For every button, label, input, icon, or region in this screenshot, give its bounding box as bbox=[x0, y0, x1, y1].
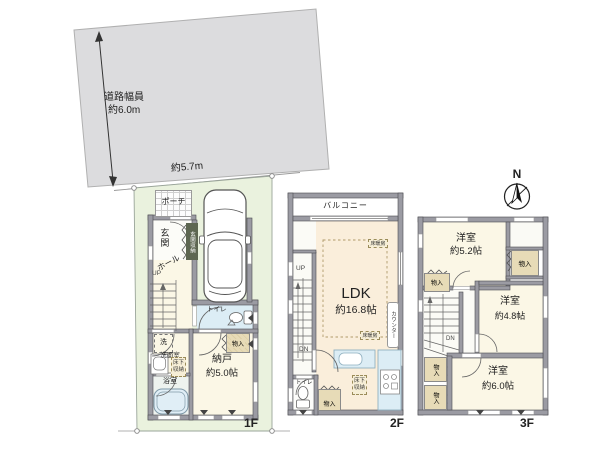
up-label-1f: UP bbox=[152, 270, 161, 277]
window-marker-icon bbox=[248, 314, 253, 322]
closet-3f-bottom1-label: 物入 bbox=[431, 364, 440, 376]
underfloor-storage-2f-label: 床下収納 bbox=[354, 378, 365, 391]
room-label-bathroom: 浴室 bbox=[152, 378, 188, 386]
closet-2f-label: 物入 bbox=[323, 399, 335, 408]
closet-3f-right-label: 物入 bbox=[519, 258, 532, 268]
road-width-value: 約6.0m bbox=[108, 105, 140, 117]
car-illustration bbox=[200, 190, 251, 302]
counter-label: カウンター bbox=[389, 311, 397, 339]
room-size-3f-room3: 約6.0帖 bbox=[455, 382, 541, 393]
underfloor-storage-2f: 床下収納 bbox=[352, 375, 367, 395]
room-label-entrance-storage: 玄関収納 bbox=[188, 231, 196, 253]
closet-1f: 物入 bbox=[226, 333, 250, 353]
room-label-toilet-2f: トイレ bbox=[292, 380, 316, 386]
counter-box: カウンター bbox=[387, 302, 399, 348]
room-label-entrance: 玄関 bbox=[159, 228, 169, 254]
closet-3f-right: 物入 bbox=[511, 250, 539, 276]
stove-icon bbox=[381, 370, 400, 394]
floor-label-1f: 1F bbox=[230, 417, 258, 431]
room-label-3f-room1: 洋室 bbox=[424, 233, 508, 245]
closet-1f-label: 物入 bbox=[231, 339, 245, 348]
floor-label-2f: 2F bbox=[376, 417, 404, 431]
window-marker-icon bbox=[228, 410, 236, 415]
window-marker-icon bbox=[299, 410, 307, 415]
closet-3f-bottom2-label: 物入 bbox=[431, 392, 440, 404]
room-label-storeroom: 納戸 bbox=[193, 354, 251, 366]
window-marker-icon bbox=[164, 410, 172, 415]
up-label-2f: UP bbox=[296, 265, 305, 272]
floor-heating-text-1: 床暖房 bbox=[370, 241, 385, 247]
compass-north-label: N bbox=[505, 168, 529, 182]
room-label-3f-room3: 洋室 bbox=[455, 366, 541, 378]
room-size-3f-room1: 約5.2帖 bbox=[424, 247, 508, 258]
floor-heating-label-top: 床暖房 bbox=[368, 239, 388, 248]
window-marker-icon bbox=[517, 410, 525, 415]
laundry-label: 洗 bbox=[160, 339, 167, 346]
room-label-porch: ポーチ bbox=[155, 197, 192, 206]
room-label-toilet-1f: トイレ bbox=[207, 306, 227, 313]
floorplan-page: 道路幅員 約6.0m 約5.7m N ポーチ 玄関 玄関収納 ホール UP トイ… bbox=[0, 0, 600, 450]
floor-heating-text-2: 床暖房 bbox=[362, 333, 377, 339]
closet-3f-bottom1: 物入 bbox=[424, 357, 447, 382]
dn-label-2f: DN bbox=[299, 346, 308, 353]
floor-heating-label-bottom: 床暖房 bbox=[360, 331, 380, 340]
closet-3f-bottom2: 物入 bbox=[424, 385, 447, 410]
underfloor-storage-1f: 床下収納 bbox=[171, 357, 186, 377]
room-label-balcony: バルコニー bbox=[293, 201, 398, 210]
entrance-storage-cabinet: 玄関収納 bbox=[186, 223, 198, 260]
window-marker-icon bbox=[248, 340, 253, 348]
room-size-storeroom: 約5.0帖 bbox=[193, 369, 251, 380]
room-label-ldk: LDK bbox=[314, 285, 398, 302]
closet-3f-left-label: 物入 bbox=[431, 278, 443, 287]
room-size-3f-room2: 約4.8帖 bbox=[478, 311, 542, 321]
room-label-3f-room2: 洋室 bbox=[478, 296, 542, 308]
room-size-ldk: 約16.8帖 bbox=[314, 304, 398, 316]
closet-2f: 物入 bbox=[318, 389, 341, 411]
dn-label-3f: DN bbox=[446, 336, 455, 343]
compass-icon bbox=[505, 183, 530, 209]
laundry-box: 洗 bbox=[154, 334, 173, 353]
window-marker-icon bbox=[476, 410, 484, 415]
closet-3f-left: 物入 bbox=[424, 273, 450, 292]
underfloor-storage-1f-label: 床下収納 bbox=[173, 360, 184, 373]
road-width-label: 道路幅員 bbox=[104, 92, 144, 104]
window-marker-icon bbox=[200, 410, 208, 415]
floor-label-3f: 3F bbox=[506, 417, 534, 431]
